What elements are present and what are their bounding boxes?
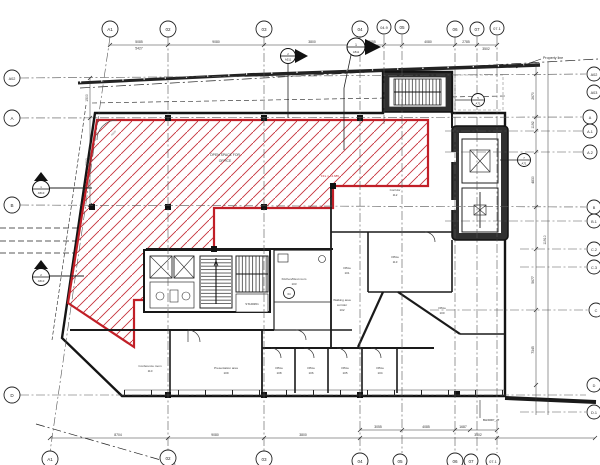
- grid-bubble-06-top: 06: [447, 21, 463, 37]
- svg-text:06: 06: [452, 27, 458, 32]
- floor-plan-drawing: 5085 5427 9080 3800 3055 4080 2785 3502 …: [0, 0, 600, 465]
- dim-right-7345: 7345: [531, 346, 535, 354]
- grid-bubble-04-top: 04: [352, 21, 368, 37]
- svg-text:1: 1: [355, 43, 357, 47]
- svg-text:A1: A1: [47, 457, 53, 462]
- svg-text:A02: A02: [591, 73, 598, 77]
- grid-bubble-b-left: B: [4, 197, 20, 213]
- svg-text:04: 04: [287, 292, 291, 296]
- grid-bubble-a1-right: A.1: [583, 124, 597, 138]
- label-office104-name: Office: [376, 366, 384, 370]
- svg-text:07: 07: [474, 27, 480, 32]
- grid-bubble-d-left: D: [4, 387, 20, 403]
- label-walking-1: Walking area: [333, 298, 351, 302]
- svg-text:C: C: [595, 309, 598, 313]
- svg-text:A71: A71: [522, 162, 527, 166]
- grid-bubble-06-bottom: 06: [447, 453, 463, 465]
- svg-text:A02: A02: [9, 77, 16, 81]
- svg-text:A511: A511: [285, 58, 292, 62]
- svg-text:B.1: B.1: [591, 220, 597, 224]
- svg-text:A510: A510: [38, 279, 45, 283]
- grid-bubble-07-bottom: 07: [464, 454, 478, 465]
- dim-bottom-1687: 1687: [459, 425, 467, 429]
- label-office108-num: 108: [276, 371, 281, 375]
- label-ffl: FFL = +4.685: [321, 174, 339, 178]
- grid-bubble-c-right: C: [589, 303, 600, 317]
- grid-bubble-a02-right: A02: [587, 67, 600, 81]
- label-office106-name: Office: [307, 366, 315, 370]
- grid-bubble-049-top: 04.9: [377, 20, 391, 34]
- svg-text:A511: A511: [353, 50, 360, 54]
- dim-top-3502: 3502: [482, 47, 490, 51]
- label-office100-num: 100: [439, 311, 444, 315]
- label-presentation-name: Presentation area: [214, 366, 238, 370]
- grid-bubble-d-right: D: [587, 378, 600, 392]
- grid-bubble-c3-right: C.3: [587, 260, 600, 274]
- grid-bubble-02-bottom: 02: [160, 450, 176, 465]
- dim-right-2670: 2670: [531, 92, 535, 100]
- dim-left-1500: 1500: [85, 94, 89, 102]
- svg-text:07.1: 07.1: [489, 460, 496, 464]
- label-conference-name: Conference room: [138, 364, 162, 368]
- dim-right-11910: 11910: [543, 235, 547, 244]
- grid-bubble-a-left: A: [4, 110, 20, 126]
- dim-bottom-9080: 9080: [211, 433, 219, 437]
- label-stair01: STAIR#01: [245, 302, 259, 306]
- svg-text:B: B: [10, 203, 13, 208]
- dim-right-4830: 4830: [531, 176, 535, 184]
- grid-bubble-b1-right: B.1: [587, 214, 600, 228]
- grid-bubble-a03-right: A03: [587, 85, 600, 99]
- label-office113-name: Office: [391, 255, 399, 259]
- label-corridor-name: Corridor: [390, 188, 401, 192]
- grid-bubble-a1-top: A1: [102, 21, 118, 37]
- dim-right-1192: 1192: [531, 121, 535, 128]
- door-tag: 04: [284, 288, 295, 299]
- dim-top-5427: 5427: [135, 47, 143, 51]
- grid-bubble-a-right: A: [583, 110, 597, 124]
- svg-text:05: 05: [397, 459, 403, 464]
- svg-text:A03: A03: [591, 91, 598, 95]
- svg-text:06: 06: [452, 459, 458, 464]
- svg-text:A71: A71: [476, 102, 481, 106]
- grid-bubble-07-top: 07: [470, 22, 484, 36]
- label-property-line: Property line: [543, 56, 563, 60]
- label-office108-name: Office: [275, 366, 283, 370]
- label-open-space-2: OFFICE: [219, 159, 232, 163]
- grid-bubble-05-bottom: 05: [393, 454, 407, 465]
- dim-top-4080: 4080: [424, 40, 432, 44]
- svg-text:04: 04: [357, 27, 363, 32]
- svg-text:05: 05: [399, 25, 405, 30]
- svg-text:A510: A510: [38, 191, 45, 195]
- drawing-sheet: 5085 5427 9080 3800 3055 4080 2785 3502 …: [0, 0, 600, 465]
- dim-bottom-8704: 8704: [114, 433, 122, 437]
- label-open-space-1: OPEN SPACE FOR: [210, 153, 240, 157]
- grid-bubble-d1-right: D.1: [587, 405, 600, 419]
- svg-text:03: 03: [261, 457, 267, 462]
- label-office100-name: Office: [438, 306, 446, 310]
- svg-text:A: A: [589, 116, 592, 120]
- dim-top-5085: 5085: [135, 40, 143, 44]
- label-walking-2: corridor: [337, 303, 347, 307]
- svg-text:02: 02: [165, 456, 171, 461]
- label-office105-name: Office: [341, 366, 349, 370]
- svg-text:C.3: C.3: [591, 266, 597, 270]
- grid-bubble-03-top: 03: [256, 21, 272, 37]
- svg-text:07.1: 07.1: [493, 27, 500, 31]
- dim-top-3800: 3800: [308, 40, 316, 44]
- grid-bubble-071-top: 07.1: [490, 21, 504, 35]
- dim-top-2785: 2785: [462, 40, 470, 44]
- label-office105-num: 105: [342, 371, 347, 375]
- dim-bottom-3502: 3502: [474, 433, 482, 437]
- svg-text:C.2: C.2: [591, 248, 597, 252]
- label-walking-num: 102: [339, 308, 344, 312]
- grid-bubble-05-top: 05: [395, 20, 409, 34]
- dim-top-9080: 9080: [212, 40, 220, 44]
- grid-bubble-b-right: B: [587, 200, 600, 214]
- label-office113-num: 113: [393, 260, 398, 264]
- svg-text:04: 04: [357, 459, 363, 464]
- label-office106-num: 106: [308, 371, 313, 375]
- svg-text:A.1: A.1: [587, 130, 593, 134]
- svg-text:A.2: A.2: [587, 151, 593, 155]
- section-marker-2: 2 A511: [281, 49, 309, 119]
- label-presentation-num: 109: [223, 371, 228, 375]
- grid-bubble-04-bottom: 04: [352, 453, 368, 465]
- dim-left-8300: 8300: [85, 158, 89, 166]
- label-office104-num: 104: [377, 371, 382, 375]
- svg-text:B: B: [593, 206, 596, 210]
- label-conference-num: 110: [148, 369, 153, 373]
- svg-text:02: 02: [165, 27, 171, 32]
- stair-core-top: [383, 72, 452, 112]
- label-office101-name: Office: [343, 266, 351, 270]
- label-kitchen-name: Kitchen/Rest room: [282, 277, 307, 281]
- grid-bubble-03-bottom: 03: [256, 451, 272, 465]
- dim-bottom-4085: 4085: [422, 425, 430, 429]
- svg-text:D.1: D.1: [591, 411, 597, 415]
- grid-bubble-a1-bottom: A1: [42, 451, 58, 465]
- grid-bubble-071-bottom: 07.1: [486, 454, 500, 465]
- label-bh-note: BH/DRP_JT: [483, 418, 500, 422]
- grid-bubble-c2-right: C.2: [587, 242, 600, 256]
- grid-bubble-02-top: 02: [160, 21, 176, 37]
- detail-marker-stair: 5 A71: [455, 94, 485, 107]
- label-corridor-num: 112: [393, 193, 398, 197]
- label-office101-num: 101: [344, 271, 349, 275]
- dim-bottom-3055: 3055: [374, 425, 382, 429]
- svg-text:D: D: [593, 384, 596, 388]
- svg-text:03: 03: [261, 27, 267, 32]
- dim-bottom-3800: 3800: [299, 433, 307, 437]
- label-kitchen-num: 103: [291, 282, 296, 286]
- svg-text:A1: A1: [107, 27, 113, 32]
- svg-text:07: 07: [468, 459, 474, 464]
- dim-right-5677: 5677: [531, 276, 535, 284]
- grid-bubble-a02-left: A02: [4, 70, 20, 86]
- grid-bubble-a2-right: A.2: [583, 145, 597, 159]
- svg-text:04.9: 04.9: [380, 26, 387, 30]
